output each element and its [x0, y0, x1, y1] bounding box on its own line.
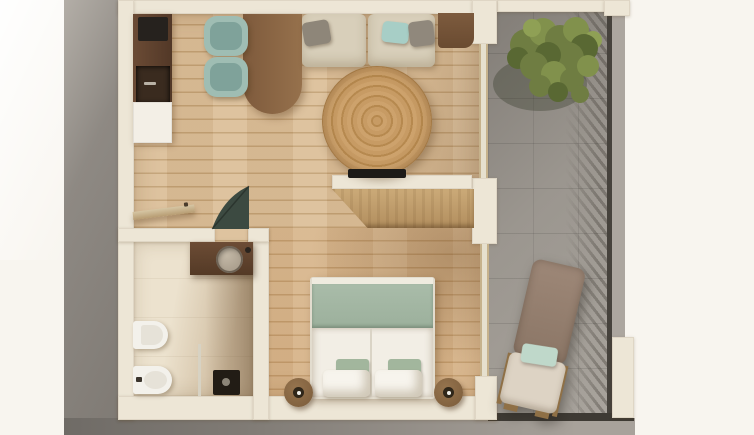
- floor-plan-render: [0, 0, 754, 435]
- bathroom-vanity: [190, 242, 253, 275]
- round-nightstand-stool: [434, 378, 463, 407]
- toilet: [133, 321, 168, 349]
- wall-bathroom-north-stub: [248, 228, 269, 242]
- dining-chair: [204, 57, 248, 97]
- oven-niche: [136, 66, 170, 104]
- wall-hall-bedroom: [253, 228, 269, 420]
- candle-icon: [297, 391, 301, 395]
- chair-seat: [210, 22, 242, 50]
- dining-table: [243, 14, 302, 114]
- shower-glass-screen: [198, 344, 201, 396]
- sofa: [302, 14, 435, 67]
- duvet-split: [370, 328, 372, 397]
- round-stone-sink: [216, 246, 243, 273]
- wall-pier-terrace-bottom: [475, 376, 497, 420]
- wall-pier-terrace-mid: [472, 178, 497, 244]
- white-base-cabinet: [133, 102, 172, 143]
- white-pillow: [375, 370, 422, 397]
- bidet: [133, 366, 172, 394]
- round-nightstand-stool: [284, 378, 313, 407]
- terrace-tree: [488, 0, 628, 140]
- shower-drain-icon: [222, 378, 230, 386]
- door-handle-icon: [184, 202, 188, 206]
- oven-handle-icon: [144, 82, 156, 85]
- cooktop: [138, 17, 168, 41]
- wall-mounted-tv: [348, 169, 406, 178]
- kitchen-cabinet-column: [133, 14, 172, 143]
- chair-seat: [210, 63, 242, 91]
- double-bed: [310, 277, 435, 399]
- bidet-bowl: [144, 371, 167, 389]
- bedroom-window: [480, 244, 489, 376]
- wall-west: [118, 0, 134, 420]
- throw-pillow-teal: [381, 21, 410, 45]
- bidet-faucet-icon: [136, 377, 142, 382]
- round-jute-rug: [322, 66, 432, 176]
- throw-pillow-gray: [408, 20, 436, 48]
- slab-side-face-left: [64, 0, 120, 428]
- candle-icon: [447, 391, 451, 395]
- faucet-icon: [245, 247, 251, 253]
- sage-blanket: [312, 284, 433, 328]
- shower-tray: [213, 370, 240, 395]
- white-pillow: [323, 370, 370, 397]
- toilet-lid: [141, 325, 163, 345]
- throw-pillow-gray: [301, 19, 332, 47]
- wall-north: [118, 0, 497, 14]
- wood-console: [438, 13, 474, 48]
- sliding-glass-door: [479, 44, 488, 178]
- dining-chair: [204, 16, 248, 56]
- wall-bathroom-north: [118, 228, 215, 242]
- wall-corner-southeast: [612, 337, 634, 418]
